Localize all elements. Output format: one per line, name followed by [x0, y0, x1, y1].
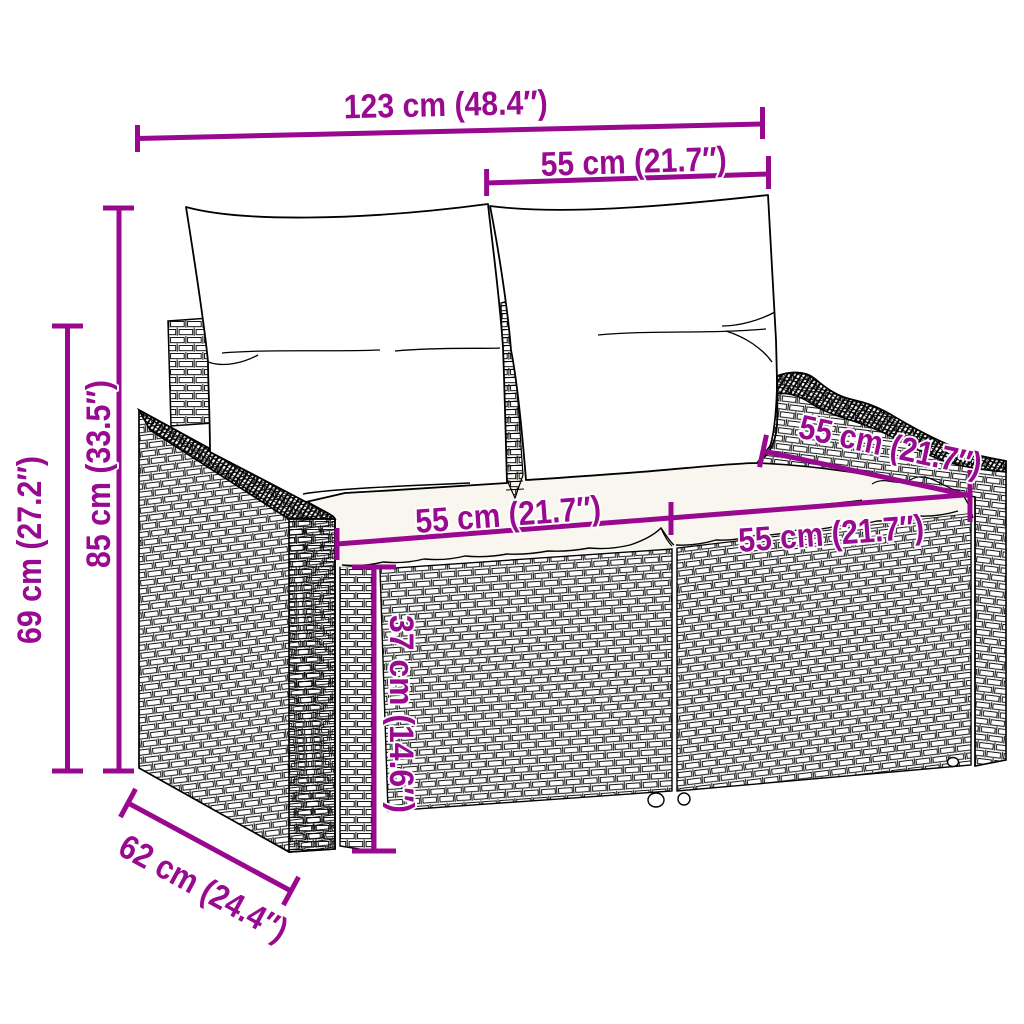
svg-text:55 cm (21.7″): 55 cm (21.7″)	[540, 140, 727, 184]
svg-text:123 cm (48.4″): 123 cm (48.4″)	[343, 84, 548, 127]
svg-text:37 cm (14.6″): 37 cm (14.6″)	[382, 615, 420, 813]
svg-text:69 cm (27.2″): 69 cm (27.2″)	[11, 456, 49, 644]
svg-text:85 cm (33.5″): 85 cm (33.5″)	[80, 380, 118, 568]
